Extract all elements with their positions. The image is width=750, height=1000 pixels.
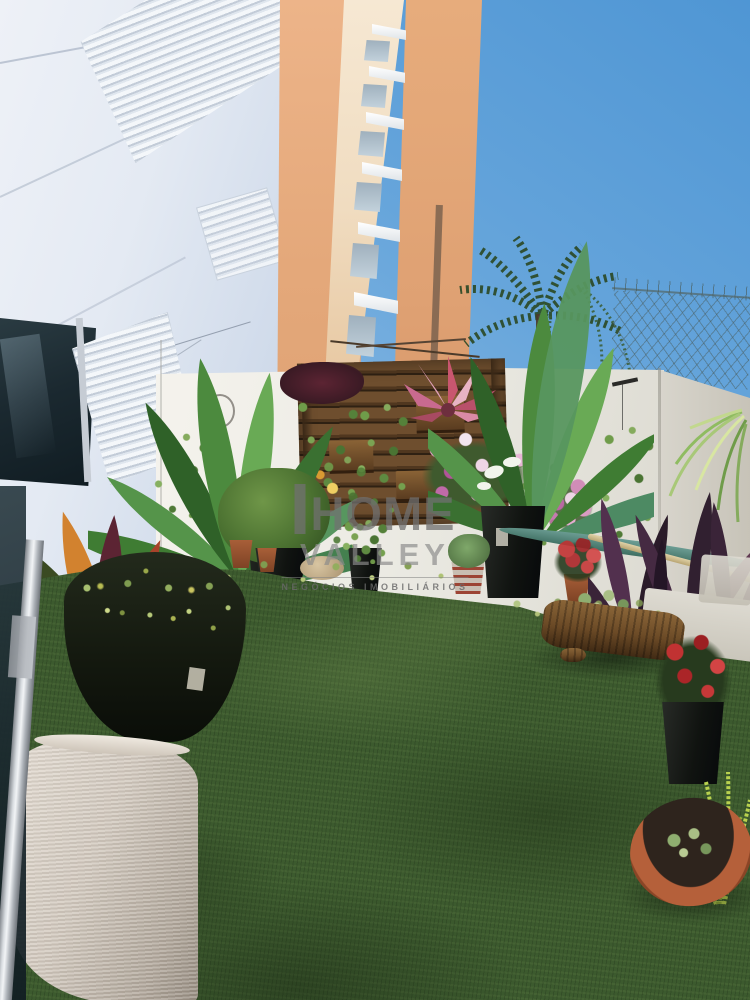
watermark-brand-top: HOME	[310, 495, 455, 534]
edge-window-pane	[364, 40, 390, 62]
bowl-succulents	[650, 818, 730, 874]
watermark-logo-bar	[294, 484, 305, 534]
watermark: HOME VALLEY NEGÓCIOS IMOBILIÁRIOS	[281, 484, 468, 592]
watermark-brand-bottom: VALLEY	[281, 537, 468, 573]
edge-window-pane	[350, 243, 379, 279]
metal-bracket	[8, 615, 36, 679]
edge-window-pane	[358, 131, 385, 157]
edge-window-pane	[361, 84, 387, 108]
patio-garden-photo: HOME VALLEY NEGÓCIOS IMOBILIÁRIOS	[0, 0, 750, 1000]
watermark-tagline: NEGÓCIOS IMOBILIÁRIOS	[281, 577, 468, 592]
bowl-label	[187, 667, 206, 691]
log-foot	[560, 648, 586, 662]
large-cream-pot	[12, 736, 198, 1000]
bowl-planting	[70, 552, 240, 642]
edge-window-pane	[354, 182, 382, 212]
white-planter-box	[698, 554, 750, 606]
watermark-brand-row: HOME	[281, 484, 468, 534]
